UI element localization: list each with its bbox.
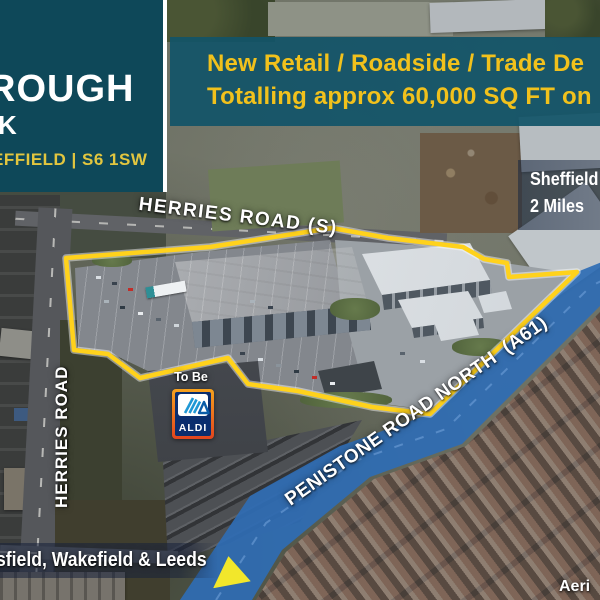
destinations-label: sfield, Wakefield & Leeds xyxy=(0,543,207,578)
development-title-fragment: ROUGH xyxy=(0,68,134,111)
banner-line-1: New Retail / Roadside / Trade De xyxy=(207,50,584,78)
brand-panel: ROUGH K EFFIELD | S6 1SW xyxy=(0,0,167,192)
road-label-herries-road: HERRIES ROAD xyxy=(52,366,72,508)
development-subtitle-fragment: K xyxy=(0,110,17,141)
banner-line-2: Totalling approx 60,000 SQ FT on xyxy=(207,83,592,111)
brochure-aerial-map: HERRIES ROAD (S) HERRIES ROAD PENISTONE … xyxy=(0,0,600,600)
distance-line2: 2 Miles xyxy=(530,193,600,220)
aldi-wordmark: ALDI xyxy=(175,422,211,434)
aerial-caption: Aeri xyxy=(559,578,590,596)
headline-banner: New Retail / Roadside / Trade De Totalli… xyxy=(170,37,600,126)
aldi-swoosh-icon xyxy=(178,394,214,416)
distance-line1: Sheffield xyxy=(530,166,600,193)
distance-badge: Sheffield 2 Miles xyxy=(518,160,600,230)
aldi-status-label: To Be xyxy=(163,370,219,384)
aldi-logo-background: ALDI xyxy=(175,392,211,436)
aldi-logo: ALDI xyxy=(172,389,214,439)
aldi-logo-mark xyxy=(178,394,208,416)
destinations-band: sfield, Wakefield & Leeds xyxy=(0,543,218,578)
address-label: EFFIELD | S6 1SW xyxy=(0,150,147,170)
